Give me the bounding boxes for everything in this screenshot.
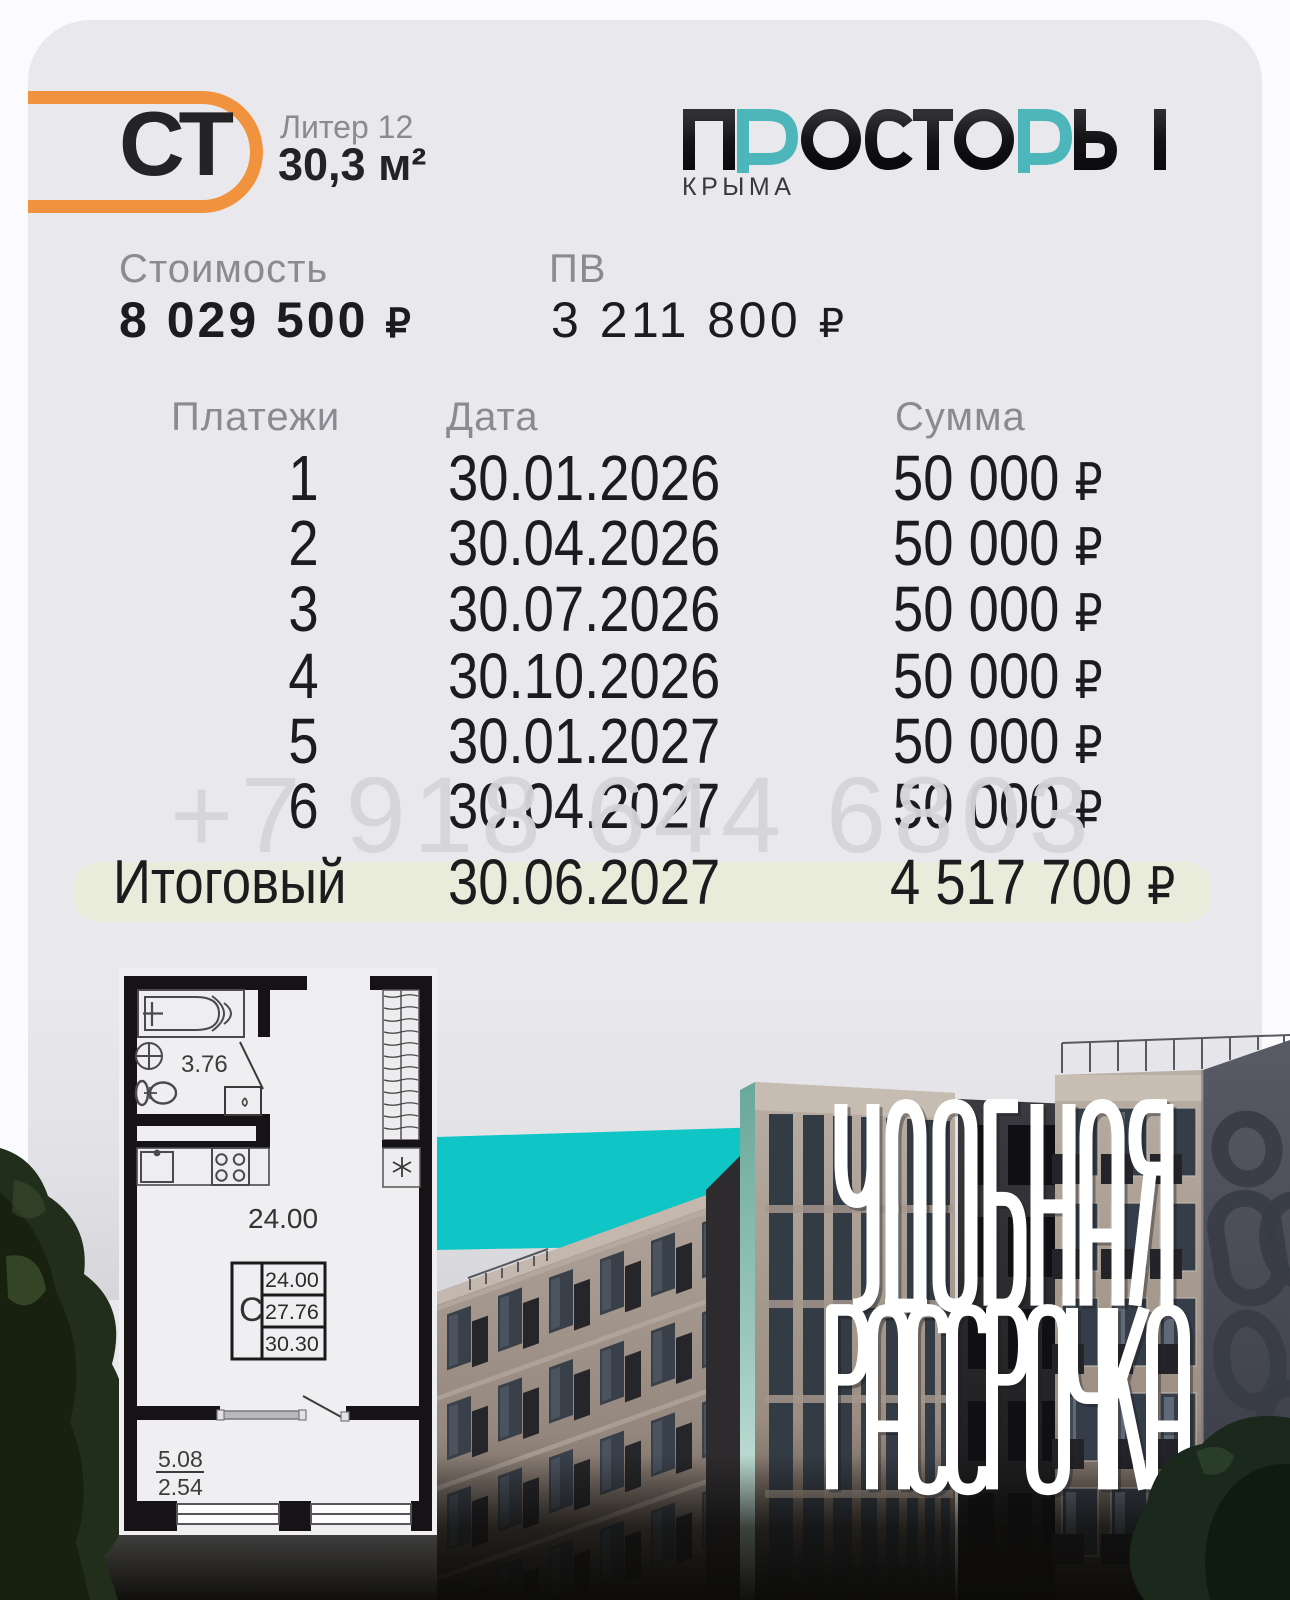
svg-text:24.00: 24.00	[248, 1203, 318, 1234]
svg-text:3.76: 3.76	[181, 1051, 228, 1078]
svg-text:30.30: 30.30	[265, 1332, 319, 1356]
svg-text:27.76: 27.76	[265, 1300, 319, 1324]
svg-text:КРЫМА: КРЫМА	[682, 173, 795, 201]
svg-text:5.08: 5.08	[158, 1446, 203, 1472]
svg-text:24.00: 24.00	[265, 1268, 319, 1292]
svg-text:С: С	[239, 1291, 264, 1329]
svg-text:2.54: 2.54	[158, 1474, 203, 1500]
